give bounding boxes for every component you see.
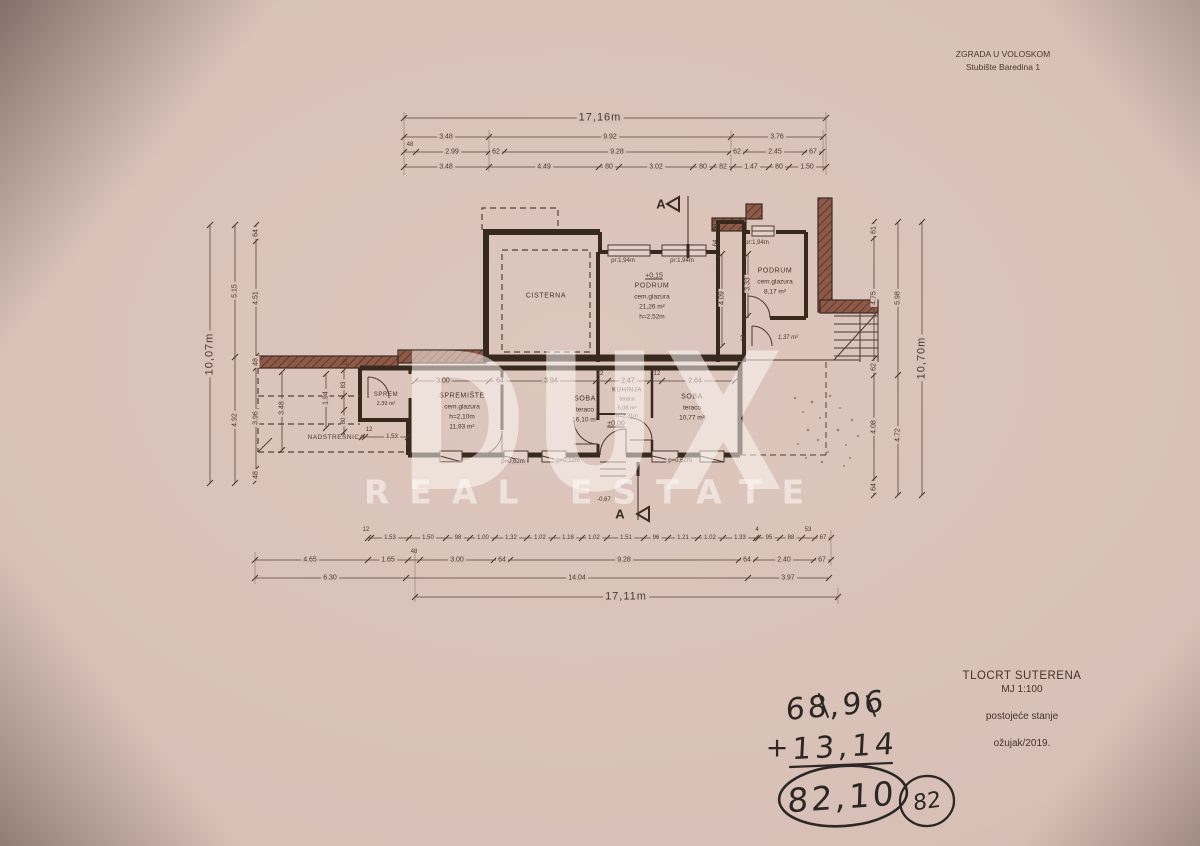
handwritten-plus-sign: + bbox=[766, 733, 789, 764]
scanned-floorplan-photo: ZGRADA U VOLOSKOM Stubište Baredina 1 17… bbox=[0, 0, 1200, 846]
handwritten-calculation: 68,96 + 13,14 82,10 82 bbox=[0, 0, 1200, 846]
handwritten-badge-circled: 82 bbox=[913, 787, 942, 816]
handwritten-value-added: 13,14 bbox=[791, 727, 899, 768]
handwriting-strokes bbox=[0, 0, 1200, 846]
handwritten-result-circled: 82,10 bbox=[787, 774, 898, 821]
